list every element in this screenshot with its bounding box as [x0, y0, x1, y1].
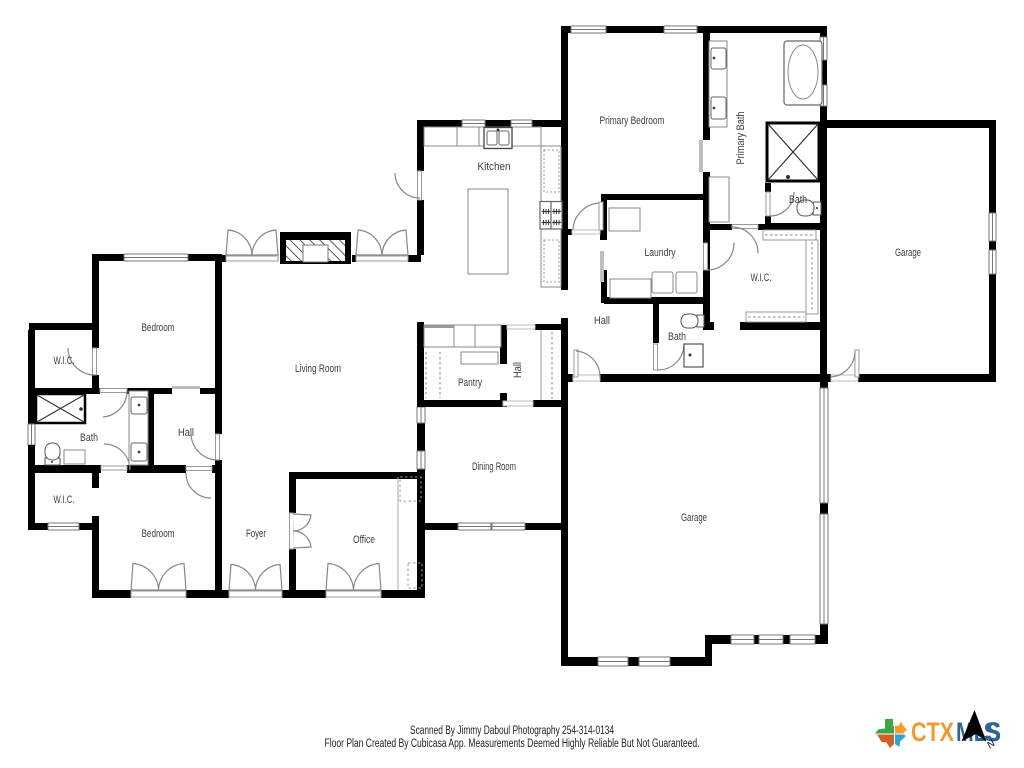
- svg-text:W.I.C.: W.I.C.: [54, 494, 75, 506]
- svg-text:Garage: Garage: [895, 247, 921, 259]
- svg-text:Primary Bath: Primary Bath: [735, 112, 747, 165]
- svg-text:Living Room: Living Room: [295, 363, 341, 375]
- svg-text:W.I.C.: W.I.C.: [54, 355, 75, 367]
- svg-text:Bedroom: Bedroom: [142, 528, 175, 540]
- svg-text:Scanned By Jimmy Daboul Photog: Scanned By Jimmy Daboul Photography 254-…: [410, 725, 614, 737]
- svg-text:CTX: CTX: [911, 717, 954, 747]
- svg-text:Bedroom: Bedroom: [142, 322, 175, 334]
- svg-text:W.I.C.: W.I.C.: [751, 272, 772, 284]
- svg-text:Bath: Bath: [789, 194, 807, 206]
- svg-text:Primary Bedroom: Primary Bedroom: [600, 115, 665, 127]
- svg-text:Hall: Hall: [594, 315, 610, 327]
- svg-text:Garage: Garage: [681, 512, 707, 524]
- svg-text:Office: Office: [353, 534, 375, 546]
- svg-text:Kitchen: Kitchen: [478, 161, 511, 173]
- svg-text:Laundry: Laundry: [645, 247, 676, 259]
- svg-text:Bath: Bath: [668, 331, 686, 343]
- svg-text:Bath: Bath: [80, 432, 98, 444]
- svg-text:Hall: Hall: [512, 362, 524, 378]
- svg-text:Pantry: Pantry: [458, 377, 482, 389]
- svg-text:Dining Room: Dining Room: [472, 461, 516, 473]
- svg-text:Floor Plan Created By Cubicasa: Floor Plan Created By Cubicasa App. Meas…: [325, 738, 700, 750]
- svg-text:Hall: Hall: [178, 427, 194, 439]
- svg-text:Foyer: Foyer: [246, 528, 266, 540]
